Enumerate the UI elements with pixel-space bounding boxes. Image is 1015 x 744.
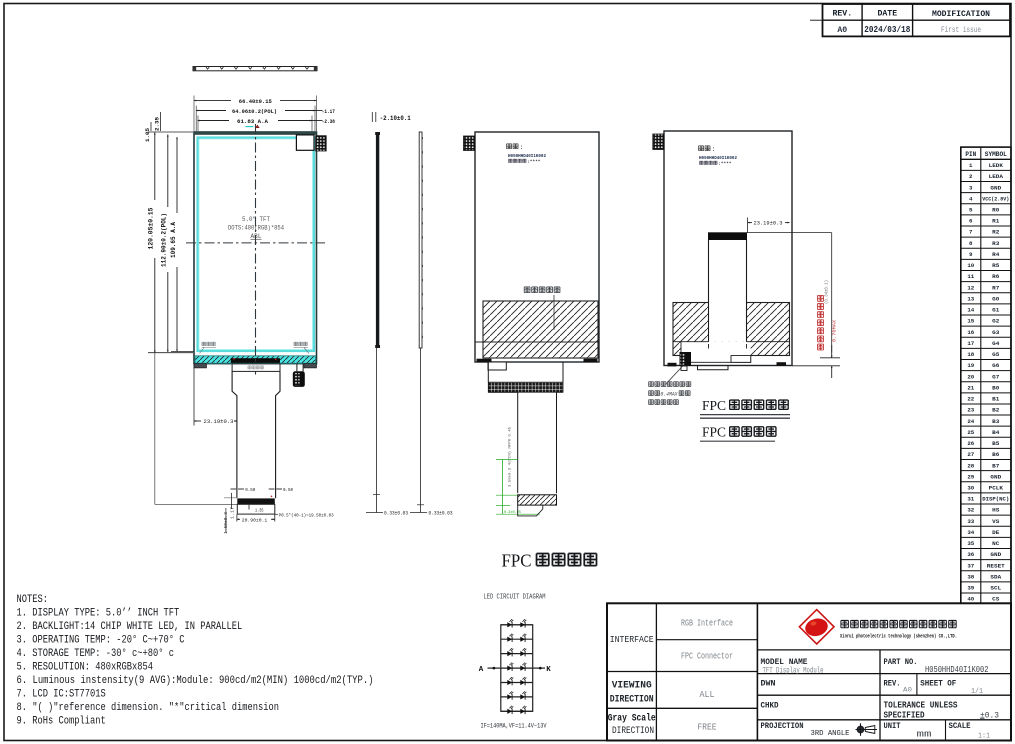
svg-text:3. OPERATING TEMP: -20° C~+70°: 3. OPERATING TEMP: -20° C~+70° C [17,634,185,646]
svg-text:3: 3 [969,184,973,191]
svg-text:64.06±0.2(POL): 64.06±0.2(POL) [232,108,277,115]
svg-text:FPC: FPC [702,425,726,440]
svg-text:NC: NC [992,541,1000,547]
svg-text:HS: HS [992,508,1000,514]
svg-text:17: 17 [967,340,974,347]
svg-text:FPC: FPC [702,398,726,413]
svg-text:0.70MAX: 0.70MAX [832,320,838,342]
svg-text:GND: GND [990,185,1002,191]
svg-text:A: A [479,666,484,674]
svg-text:0.33±0.03: 0.33±0.03 [429,511,453,517]
svg-text:21: 21 [967,384,974,391]
svg-text:LED CIRCUIT DIAGRAM: LED CIRCUIT DIAGRAM [484,594,546,602]
svg-text:66.40±0.15: 66.40±0.15 [239,98,273,105]
svg-text:6: 6 [969,218,973,225]
svg-text:38: 38 [967,573,974,580]
svg-text:27: 27 [967,451,974,458]
svg-text:VCC(2.8V): VCC(2.8V) [982,196,1009,202]
svg-text:28: 28 [967,462,974,469]
svg-text:23.19±0.3: 23.19±0.3 [754,221,783,227]
svg-text:40: 40 [967,596,974,603]
svg-text:UNIT: UNIT [884,721,901,731]
svg-text:3.50±0.3 4(PIN) NFP8 0.45: 3.50±0.3 4(PIN) NFP8 0.45 [508,426,513,487]
svg-text:1/1: 1/1 [971,688,983,696]
svg-text:(0.34±0.1): (0.34±0.1) [825,280,830,304]
svg-text:INTERFACE: INTERFACE [610,634,654,645]
svg-text:DWN: DWN [761,678,776,688]
svg-text:35: 35 [967,540,974,547]
svg-text:29: 29 [967,473,974,480]
svg-text:11: 11 [967,273,974,280]
svg-text:7: 7 [969,229,973,236]
svg-text:PIN: PIN [965,151,976,158]
svg-text:0.50: 0.50 [283,487,293,493]
svg-text:20.90±0.1: 20.90±0.1 [242,517,268,523]
svg-text:R4: R4 [992,252,1000,258]
svg-text:SCL: SCL [990,586,1001,592]
svg-text:PART NO.: PART NO. [884,657,918,667]
svg-text:G3: G3 [992,330,999,336]
svg-text:15: 15 [967,318,974,325]
svg-text:B4: B4 [992,430,1000,436]
svg-text:R7: R7 [992,285,999,291]
svg-text:RGB Interface: RGB Interface [681,619,733,629]
svg-text:2. BACKLIGHT:14 CHIP WHITE LED: 2. BACKLIGHT:14 CHIP WHITE LED, IN PARAL… [17,621,243,633]
svg-text:36: 36 [967,551,974,558]
svg-text:G5: G5 [992,352,999,358]
svg-text:1: 1 [969,162,973,169]
svg-text:13: 13 [967,295,974,302]
svg-text:R2: R2 [992,230,999,236]
svg-text:31: 31 [967,496,974,503]
svg-text:DIRECTION: DIRECTION [610,695,654,706]
svg-text:32: 32 [967,507,974,514]
svg-text:IF=140MA,VF=11.4V~13V: IF=140MA,VF=11.4V~13V [481,723,547,730]
svg-text:RESET: RESET [987,563,1006,569]
svg-text:DATE: DATE [877,10,897,19]
svg-text:0.33±0.03: 0.33±0.03 [384,511,408,517]
svg-text:37: 37 [967,562,974,569]
svg-text:22: 22 [967,396,974,403]
svg-text:7. LCD IC:ST7701S: 7. LCD IC:ST7701S [17,688,106,700]
svg-text:120.05±0.15: 120.05±0.15 [148,207,155,249]
svg-text:2024/03/18: 2024/03/18 [864,24,910,35]
svg-text:39: 39 [967,585,974,592]
svg-text:Xinrui photoelectric technolog: Xinrui photoelectric technology (shenzhe… [840,632,957,639]
svg-text:3RD ANGLE: 3RD ANGLE [811,730,850,738]
svg-text:12: 12 [967,284,974,291]
svg-text:MODEL NAME: MODEL NAME [761,657,808,667]
svg-text:1.17: 1.17 [231,506,235,519]
svg-text:B2: B2 [992,408,999,414]
svg-text:NOTES:: NOTES: [17,594,49,606]
svg-text:K: K [546,666,551,674]
svg-text:18: 18 [967,351,974,358]
svg-text:1.05: 1.05 [145,128,151,142]
svg-text:First issue: First issue [941,26,981,35]
svg-text:CS: CS [992,597,1000,603]
svg-text:B6: B6 [992,452,999,458]
svg-text:G6: G6 [992,363,999,369]
svg-text:33: 33 [967,518,974,525]
svg-text:26: 26 [967,440,974,447]
svg-text:G1: G1 [992,308,999,314]
svg-text:R0: R0 [992,208,999,214]
svg-text:8. ″( )″reference dimension. ″: 8. ″( )″reference dimension. ″*″critical… [17,702,280,714]
svg-text:SCALE: SCALE [949,721,971,731]
svg-text:FPC: FPC [502,551,532,571]
svg-text:0.3±0.05: 0.3±0.05 [504,511,521,515]
svg-text:ALL: ALL [700,690,715,700]
svg-text:G7: G7 [992,374,999,380]
svg-text:9: 9 [969,251,973,258]
svg-text:LEDK: LEDK [989,163,1004,169]
svg-text:H050HHD40I1K002: H050HHD40I1K002 [508,154,546,159]
svg-text:H050HHD40I1K002: H050HHD40I1K002 [699,156,737,161]
svg-text:mm: mm [917,728,932,739]
svg-text:0.4MAX: 0.4MAX [661,392,679,398]
svg-text:R5: R5 [992,263,999,269]
svg-text:1. DISPLAY TYPE: 5.0’’ INCH TF: 1. DISPLAY TYPE: 5.0’’ INCH TFT [17,607,180,619]
svg-text:DE: DE [992,530,1000,536]
svg-text:24: 24 [967,418,974,425]
svg-text:16: 16 [967,329,974,336]
svg-text:23: 23 [967,407,974,414]
svg-text:Gray Scale: Gray Scale [608,712,656,724]
svg-text:B5: B5 [992,441,999,447]
svg-text:DISP(NC): DISP(NC) [982,497,1009,503]
svg-text:5. RESOLUTION: 480xRGBx854: 5. RESOLUTION: 480xRGBx854 [17,661,154,673]
svg-text:VIEWING: VIEWING [612,681,652,692]
svg-text:GND: GND [990,552,1002,558]
svg-text:25: 25 [967,429,974,436]
svg-text:6. Luminous instensity(9 AVG):: 6. Luminous instensity(9 AVG):Module: 90… [17,675,374,687]
svg-text:4: 4 [969,195,973,202]
svg-text:PROJECTION: PROJECTION [761,721,804,731]
svg-text:9. RoHs Compliant: 9. RoHs Compliant [17,715,106,727]
svg-text:20: 20 [967,373,974,380]
svg-text:H050HHD40I1K002: H050HHD40I1K002 [925,664,989,675]
svg-text:GND: GND [990,474,1002,480]
svg-text:G0: G0 [992,296,999,302]
svg-text:112.90±0.2(POL): 112.90±0.2(POL) [161,213,168,267]
svg-text:10: 10 [967,262,974,269]
svg-text:SDA: SDA [990,574,1002,580]
svg-text:REV.: REV. [832,10,852,19]
svg-text::: : [712,146,716,153]
svg-text:B0: B0 [992,385,999,391]
svg-text:MODIFICATION: MODIFICATION [932,10,990,19]
svg-text:FREE: FREE [698,723,717,733]
svg-text:R6: R6 [992,274,999,280]
svg-text:FPC Connector: FPC Connector [681,651,733,661]
svg-text:B3: B3 [992,419,999,425]
svg-text:-2.10±0.1: -2.10±0.1 [380,115,411,122]
svg-text:A0: A0 [837,26,847,35]
svg-text:SYMBOL: SYMBOL [985,151,1007,158]
svg-text:R1: R1 [992,219,999,225]
svg-text:G2: G2 [992,319,999,325]
svg-text:-1.17: -1.17 [322,108,335,115]
svg-text:-2.38: -2.38 [322,118,335,125]
svg-text:G4: G4 [992,341,1000,347]
svg-text:109.65 A.A: 109.65 A.A [170,222,177,258]
svg-text:B7: B7 [992,463,999,469]
svg-text:5: 5 [969,207,973,214]
svg-text:A0: A0 [903,686,912,694]
svg-text:TFT Display Module: TFT Display Module [763,666,824,675]
svg-text:61.83 A.A: 61.83 A.A [237,118,269,125]
svg-text::****: :**** [718,161,732,167]
svg-text:SPECIFIED: SPECIFIED [884,709,925,720]
svg-text:2.35: 2.35 [154,117,160,131]
svg-text:19: 19 [967,362,974,369]
svg-text:PCLK: PCLK [989,486,1004,492]
svg-text:CHKD: CHKD [761,701,779,711]
svg-text:30: 30 [967,485,974,492]
svg-text:14: 14 [967,307,974,314]
svg-text:23.19±0.3: 23.19±0.3 [204,419,234,425]
svg-text:B1: B1 [992,397,999,403]
svg-text:8: 8 [969,240,973,247]
svg-text:4. STORAGE TEMP: -30° c~+80° c: 4. STORAGE TEMP: -30° c~+80° c [17,648,175,660]
svg-text:34: 34 [967,529,974,536]
svg-text:SHEET OF: SHEET OF [920,678,956,688]
svg-text:P0.5*(40-1)=19.50±0.03: P0.5*(40-1)=19.50±0.03 [279,513,334,519]
svg-text:VS: VS [992,519,1000,525]
svg-text::: : [520,144,524,151]
svg-text:2: 2 [969,173,973,180]
svg-text:1.35: 1.35 [255,509,264,514]
svg-text:0.50: 0.50 [245,487,255,493]
svg-text:1:1: 1:1 [978,732,990,740]
svg-text:DIRECTION: DIRECTION [612,726,654,737]
svg-text:REV.: REV. [884,678,901,688]
svg-text:R3: R3 [992,241,999,247]
svg-text:LEDA: LEDA [989,174,1004,180]
svg-text::****: :**** [527,159,541,165]
